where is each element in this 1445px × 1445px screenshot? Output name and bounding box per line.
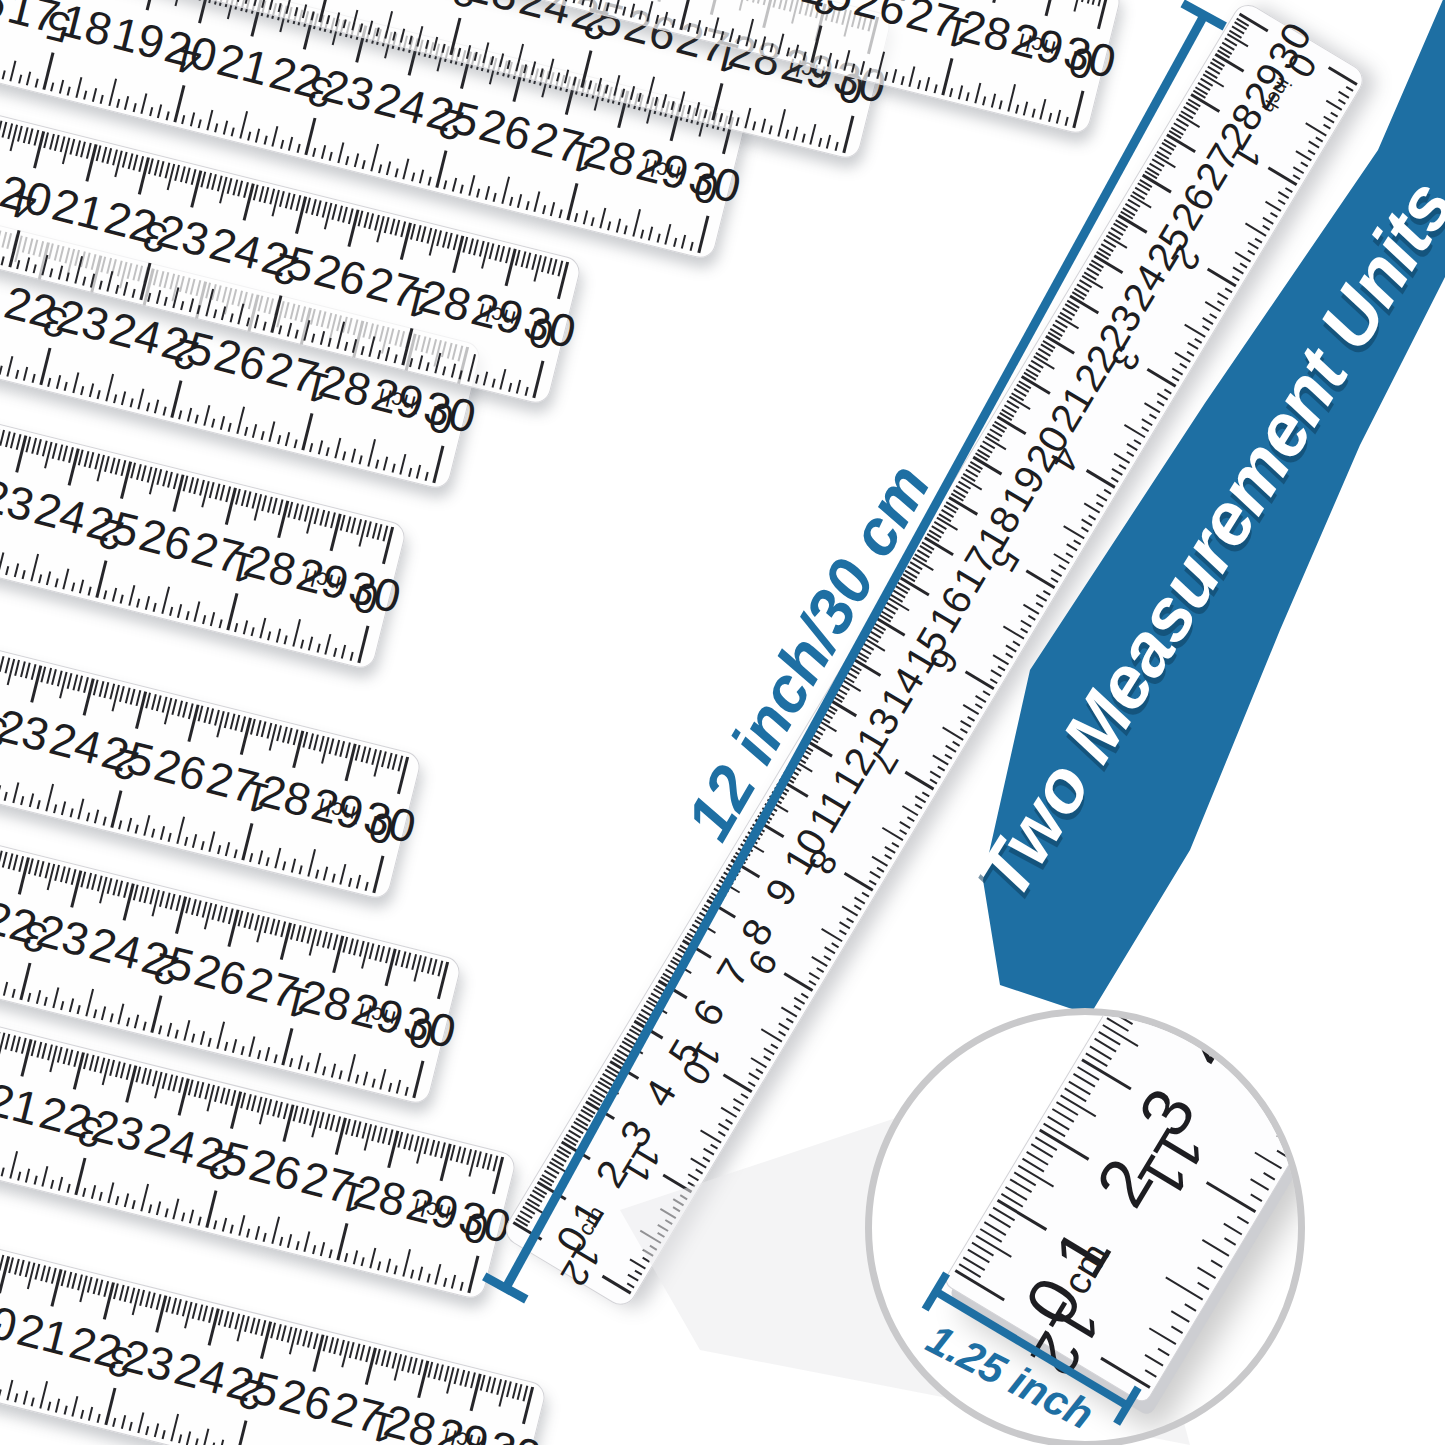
inch-tick xyxy=(83,91,87,100)
inch-number: 10 xyxy=(1231,1008,1305,1034)
inch-tick xyxy=(524,387,528,396)
inch-tick xyxy=(269,421,276,442)
inch-tick xyxy=(1088,514,1096,520)
inch-tick xyxy=(1285,187,1293,193)
inch-tick xyxy=(671,19,675,28)
inch-tick xyxy=(188,298,193,312)
inch-tick xyxy=(328,1249,332,1258)
inch-tick xyxy=(159,826,164,840)
inch-tick xyxy=(6,1380,13,1401)
inch-tick xyxy=(900,76,904,85)
inch-tick xyxy=(191,1034,195,1043)
inch-tick xyxy=(47,378,51,387)
inch-tick xyxy=(665,224,672,245)
inch-tick xyxy=(509,197,513,206)
inch-tick xyxy=(974,83,981,104)
cm-number: 21 xyxy=(213,36,274,93)
inch-tick xyxy=(7,356,14,377)
inch-tick xyxy=(229,313,233,322)
inch-tick xyxy=(648,227,653,241)
inch-tick xyxy=(418,1267,423,1281)
inch-tick xyxy=(118,1004,125,1025)
inch-tick xyxy=(253,0,262,6)
inch-tick xyxy=(474,52,478,61)
inch-tick xyxy=(315,869,319,878)
inch-tick xyxy=(236,406,245,434)
cm-number: 24 xyxy=(370,75,431,132)
inch-tick xyxy=(129,1422,133,1431)
inch-tick xyxy=(312,1245,316,1254)
cm-tick xyxy=(1045,0,1057,16)
inch-tick xyxy=(263,136,267,145)
inch-tick xyxy=(876,51,885,79)
inch-tick xyxy=(892,69,897,83)
inch-tick xyxy=(720,31,724,40)
inch-tick xyxy=(1232,267,1243,275)
inch-tick xyxy=(728,28,733,42)
inch-tick xyxy=(82,1188,86,1197)
inch-tick xyxy=(1,1167,5,1176)
inch-tick xyxy=(515,44,524,72)
inch-tick xyxy=(427,176,431,185)
inch-tick xyxy=(60,1001,64,1010)
inch-tick xyxy=(621,89,625,98)
inch-tick xyxy=(680,1194,688,1200)
inch-tick xyxy=(673,1198,684,1206)
inch-tick xyxy=(142,1021,146,1030)
zoom-callout-circle: 0cm12345679101112 1.25 inch xyxy=(865,1008,1305,1445)
inch-tick xyxy=(1276,1135,1295,1148)
inch-tick xyxy=(450,363,455,377)
inch-tick xyxy=(516,380,521,394)
inch-tick xyxy=(345,156,349,165)
cm-number: 26 xyxy=(245,1141,306,1198)
inch-tick xyxy=(206,110,213,131)
inch-tick xyxy=(1066,544,1077,552)
inch-tick xyxy=(818,138,822,147)
inch-tick xyxy=(1330,111,1338,117)
inch-tick xyxy=(36,990,41,1004)
inch-tick xyxy=(673,238,677,247)
inch-tick xyxy=(260,431,264,440)
cm-tick xyxy=(992,0,1004,3)
inch-tick xyxy=(123,282,128,296)
inch-tick xyxy=(1043,590,1051,596)
inch-tick xyxy=(460,185,464,194)
inch-tick xyxy=(417,26,424,47)
inch-tick xyxy=(606,2,610,11)
inch-tick xyxy=(267,631,271,640)
inch-tick xyxy=(404,1087,408,1096)
inch-tick xyxy=(45,784,54,812)
inch-tick xyxy=(1303,1106,1305,1114)
inch-tick xyxy=(793,127,798,141)
inch-tick xyxy=(78,799,85,820)
inch-tick xyxy=(1145,1369,1157,1377)
inch-tick xyxy=(0,366,3,375)
inch-tick xyxy=(209,831,216,852)
inch-tick xyxy=(367,20,372,34)
inch-tick xyxy=(349,652,353,661)
inch-tick xyxy=(688,1173,699,1181)
inch-tick xyxy=(210,612,215,626)
inch-tick xyxy=(605,85,609,94)
inch-tick xyxy=(1211,1260,1223,1268)
inch-tick xyxy=(1073,540,1081,546)
inch-tick xyxy=(61,801,66,815)
inch-tick xyxy=(531,61,536,75)
inch-tick xyxy=(1031,109,1035,118)
inch-tick xyxy=(975,695,986,703)
inch-tick xyxy=(1194,338,1202,344)
inch-tick xyxy=(182,115,186,124)
inch-tick xyxy=(1172,367,1183,375)
inch-tick xyxy=(1081,519,1092,527)
cm-number: 24 xyxy=(205,220,266,277)
inch-tick xyxy=(591,217,595,226)
inch-tick xyxy=(695,1169,703,1175)
inch-tick xyxy=(262,321,266,330)
inch-tick xyxy=(290,858,295,872)
cm-tick xyxy=(955,1269,1005,1301)
inch-tick xyxy=(810,124,817,145)
inch-tick xyxy=(350,448,355,462)
cm-number: 26 xyxy=(135,511,196,568)
inch-tick xyxy=(681,235,686,249)
inch-tick xyxy=(687,105,691,114)
width-cap-start xyxy=(922,1271,950,1311)
inch-tick xyxy=(88,383,93,397)
inch-tick xyxy=(298,1055,303,1069)
inch-tick xyxy=(410,1269,414,1278)
inch-tick xyxy=(1100,1357,1150,1389)
inch-tick xyxy=(990,678,998,684)
inch-tick xyxy=(132,1200,136,1209)
inch-tick xyxy=(377,1261,381,1270)
inch-tick xyxy=(1223,1222,1242,1235)
inch-tick xyxy=(1323,116,1334,124)
inch-tick xyxy=(228,423,232,432)
inch-tick xyxy=(273,1054,277,1063)
inch-tick xyxy=(945,745,956,753)
inch-tick xyxy=(50,1180,54,1189)
inch-tick xyxy=(818,55,822,64)
inch-tick xyxy=(1277,1150,1289,1158)
inch-tick xyxy=(1,70,5,79)
inch-tick xyxy=(827,53,832,67)
inch-tick xyxy=(794,44,799,58)
inch-tick xyxy=(129,398,133,407)
inch-tick xyxy=(998,665,1006,671)
inch-tick xyxy=(778,1030,786,1036)
inch-tick xyxy=(1277,200,1285,206)
inch-tick xyxy=(1007,84,1016,112)
inch-tick xyxy=(279,1237,283,1246)
inch-tick xyxy=(269,0,274,10)
inch-tick xyxy=(663,12,668,26)
inch-tick xyxy=(868,68,872,77)
inch-tick xyxy=(0,785,1,799)
inch-tick xyxy=(899,829,907,835)
inch-tick xyxy=(1232,275,1240,281)
inch-tick xyxy=(328,338,332,347)
inch-tick xyxy=(400,29,405,43)
inch-tick xyxy=(640,229,644,238)
inch-tick xyxy=(737,35,741,44)
inch-tick xyxy=(151,829,155,838)
inch-tick xyxy=(67,87,71,96)
inch-tick xyxy=(419,169,424,183)
inch-tick xyxy=(4,792,8,801)
inch-tick xyxy=(224,1042,228,1051)
inch-tick xyxy=(233,849,237,858)
inch-tick xyxy=(1263,1172,1275,1180)
inch-tick xyxy=(251,627,255,636)
inch-tick xyxy=(353,1250,358,1264)
inch-tick xyxy=(344,1253,348,1262)
inch-tick xyxy=(990,670,1001,678)
inch-tick xyxy=(336,321,345,349)
inch-tick xyxy=(244,427,248,436)
inch-tick xyxy=(287,1234,292,1248)
inch-tick xyxy=(435,1264,442,1285)
cm-number: 26 xyxy=(190,946,251,1003)
inch-tick xyxy=(507,60,511,69)
inch-tick xyxy=(208,1038,212,1047)
inch-tick xyxy=(433,37,438,51)
inch-tick xyxy=(245,0,249,4)
inch-tick xyxy=(59,80,64,94)
inch-tick xyxy=(712,17,719,38)
inch-tick xyxy=(1197,1266,1216,1279)
inch-tick xyxy=(794,997,805,1005)
inch-tick xyxy=(126,1017,130,1026)
inch-tick xyxy=(960,728,968,734)
inch-tick xyxy=(240,1046,244,1055)
inch-tick xyxy=(103,590,107,599)
inch-tick xyxy=(17,260,21,269)
inch-tick xyxy=(309,443,313,452)
inch-tick xyxy=(79,579,84,593)
inch-tick xyxy=(523,64,527,73)
inch-tick xyxy=(1015,104,1019,113)
inch-tick xyxy=(258,850,263,864)
inch-tick xyxy=(287,323,292,337)
inch-tick xyxy=(615,218,620,232)
inch-tick xyxy=(138,389,145,410)
inch-tick xyxy=(175,1030,179,1039)
inch-tick xyxy=(41,255,48,276)
inch-tick xyxy=(689,242,693,251)
inch-tick xyxy=(342,451,346,460)
inch-tick xyxy=(869,879,877,885)
inch-tick xyxy=(826,135,831,149)
inch-tick xyxy=(400,454,407,475)
inch-tick xyxy=(115,285,119,294)
inch-tick xyxy=(107,271,114,292)
inch-tick xyxy=(321,145,326,159)
inch-tick xyxy=(105,374,114,402)
inch-tick xyxy=(1338,91,1349,99)
inch-tick xyxy=(334,438,341,459)
inch-tick xyxy=(285,432,290,446)
inch-tick xyxy=(697,216,709,254)
inch-tick xyxy=(218,619,222,628)
inch-tick xyxy=(80,1410,84,1419)
inch-tick xyxy=(307,849,316,877)
inch-tick xyxy=(1255,237,1263,243)
cm-number: 4 xyxy=(1169,1008,1249,1077)
inch-tick xyxy=(178,410,182,419)
inch-tick xyxy=(670,101,674,110)
inch-tick xyxy=(394,168,398,177)
inch-tick xyxy=(607,221,611,230)
inch-tick xyxy=(548,59,555,80)
inch-tick xyxy=(181,1212,185,1221)
inch-tick xyxy=(1081,527,1089,533)
inch-tick xyxy=(329,152,333,161)
inch-tick xyxy=(254,1226,259,1240)
inch-tick xyxy=(884,72,888,81)
inch-tick xyxy=(232,1039,237,1053)
inch-tick xyxy=(1141,426,1149,432)
inch-tick xyxy=(311,334,315,343)
inch-tick xyxy=(990,93,995,107)
inch-tick xyxy=(28,793,33,807)
inch-tick xyxy=(434,353,441,374)
inch-tick xyxy=(286,0,293,14)
inch-tick xyxy=(975,703,983,709)
inch-tick xyxy=(1346,86,1354,92)
inch-tick xyxy=(326,447,330,456)
inch-tick xyxy=(330,1063,335,1077)
inch-tick xyxy=(88,1407,93,1421)
inch-tick xyxy=(304,1231,311,1252)
inch-tick xyxy=(340,864,347,885)
inch-tick xyxy=(542,205,546,214)
cm-number: 9 xyxy=(758,872,804,912)
inch-tick xyxy=(733,1106,741,1112)
inch-tick xyxy=(3,982,8,996)
inch-tick xyxy=(929,779,937,785)
inch-tick xyxy=(763,1056,771,1062)
inch-tick xyxy=(1250,1194,1262,1202)
inch-tick xyxy=(597,78,602,92)
inch-tick xyxy=(573,0,577,3)
inch-tick xyxy=(195,415,199,424)
inch-tick xyxy=(289,1058,293,1067)
inch-tick xyxy=(74,256,83,284)
inch-tick xyxy=(136,599,140,608)
cm-number: 24 xyxy=(30,485,91,542)
inch-tick xyxy=(184,837,188,846)
inch-tick xyxy=(851,64,855,73)
inch-tick xyxy=(884,846,895,854)
inch-tick xyxy=(51,82,55,91)
inch-tick xyxy=(1103,489,1111,495)
inch-tick xyxy=(647,1,654,22)
inch-tick xyxy=(933,84,937,93)
inch-tick xyxy=(15,370,19,379)
inch-tick xyxy=(744,108,751,129)
inch-tick xyxy=(930,770,941,778)
inch-tick xyxy=(1179,363,1187,369)
inch-tick xyxy=(57,265,62,279)
inch-tick xyxy=(271,1216,280,1244)
inch-tick xyxy=(1290,1128,1302,1136)
inch-tick xyxy=(370,144,379,172)
inch-tick xyxy=(1255,1151,1283,1169)
inch-tick xyxy=(351,10,358,31)
inch-tick xyxy=(72,372,79,393)
inch-tick xyxy=(1278,191,1289,199)
inch-tick xyxy=(583,210,588,224)
inch-tick xyxy=(442,366,446,375)
inch-tick xyxy=(1005,653,1013,659)
inch-tick xyxy=(960,720,971,728)
inch-tick xyxy=(785,129,789,138)
inch-tick xyxy=(124,96,129,110)
inch-tick xyxy=(144,596,149,610)
inch-tick xyxy=(1206,1181,1256,1213)
inch-tick xyxy=(917,80,921,89)
inch-tick xyxy=(353,153,358,167)
inch-tick xyxy=(361,1257,365,1266)
inch-tick xyxy=(339,1070,343,1079)
inch-tick xyxy=(66,272,70,281)
inch-tick xyxy=(153,1423,158,1437)
inch-tick xyxy=(1240,263,1248,269)
inch-tick xyxy=(1005,644,1016,652)
inch-tick xyxy=(1209,313,1217,319)
inch-tick xyxy=(748,1081,756,1087)
inch-tick xyxy=(752,121,756,130)
inch-tick xyxy=(0,256,4,265)
inch-tick xyxy=(180,301,184,310)
inch-tick xyxy=(1066,552,1074,558)
inch-tick xyxy=(37,800,41,809)
inch-tick xyxy=(102,816,106,825)
inch-tick xyxy=(842,116,854,154)
inch-tick xyxy=(550,202,555,216)
inch-tick xyxy=(876,867,884,873)
inch-tick xyxy=(316,644,320,653)
inch-tick xyxy=(1149,414,1157,420)
inch-tick xyxy=(771,1043,779,1049)
inch-tick xyxy=(719,113,723,122)
inch-tick xyxy=(854,905,862,911)
inch-tick xyxy=(52,987,59,1008)
inch-tick xyxy=(143,815,150,836)
inch-tick xyxy=(72,1396,79,1417)
inch-tick xyxy=(172,287,179,308)
inch-tick xyxy=(252,424,257,438)
inch-tick xyxy=(230,1225,234,1234)
inch-tick xyxy=(468,175,475,196)
inch-tick xyxy=(1056,110,1061,124)
inch-tick xyxy=(54,578,58,587)
inch-tick xyxy=(525,201,529,210)
inch-tick xyxy=(146,402,150,411)
inch-tick xyxy=(403,159,410,180)
inch-tick xyxy=(25,1169,30,1183)
inch-tick xyxy=(77,1005,81,1014)
inch-tick xyxy=(47,1401,51,1410)
inch-tick xyxy=(211,419,215,428)
inch-tick xyxy=(217,845,221,854)
inch-tick xyxy=(476,189,480,198)
inch-tick xyxy=(243,620,248,634)
